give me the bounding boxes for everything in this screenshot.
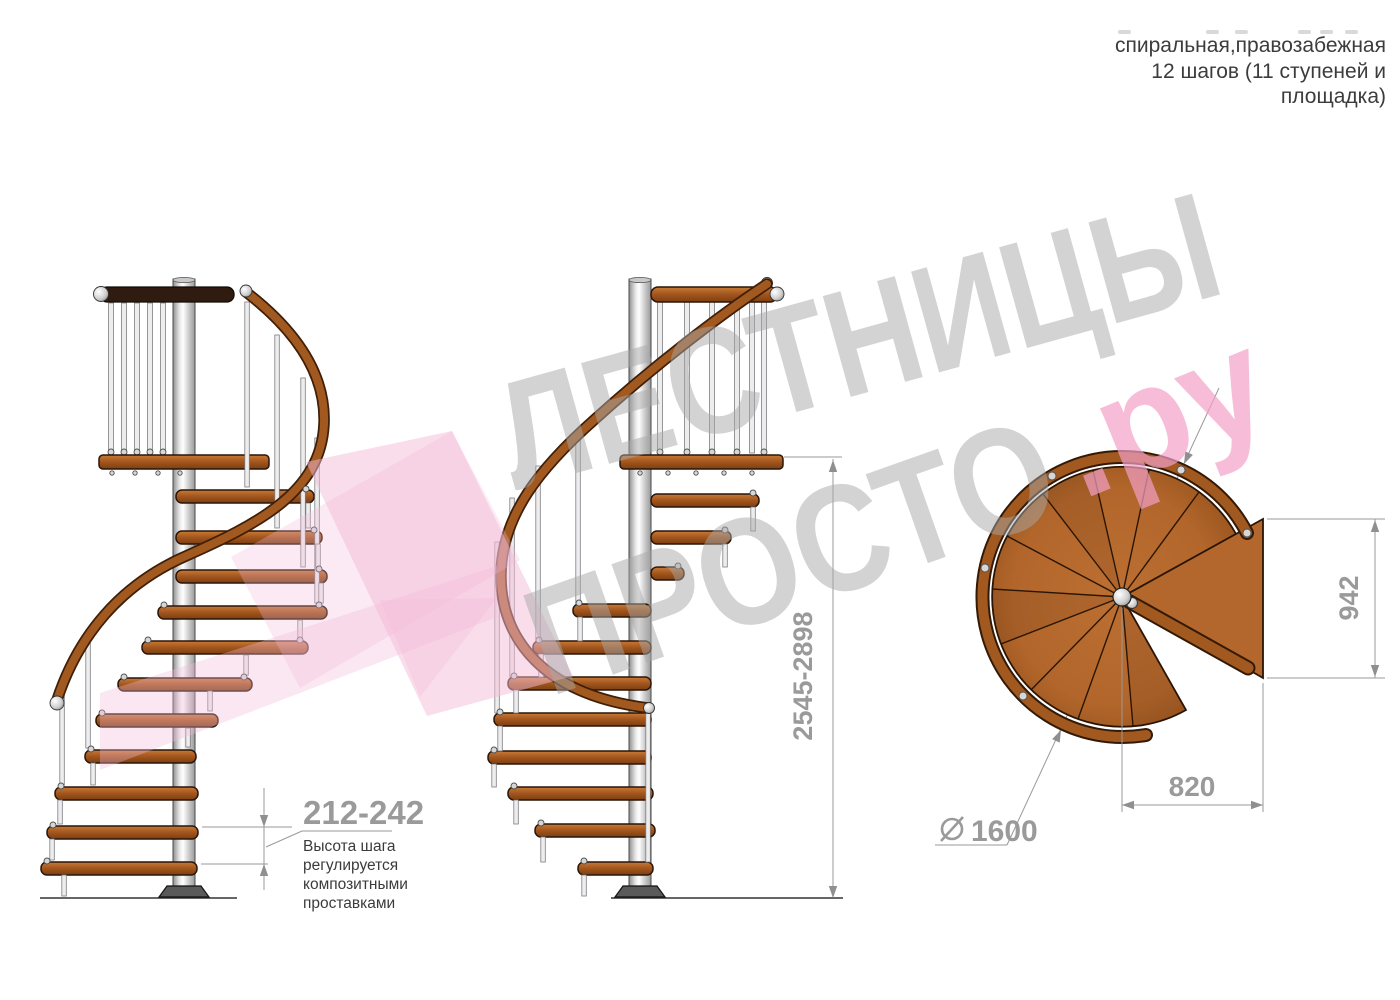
step [651, 531, 731, 544]
landing-depth-value: 942 [1334, 575, 1364, 620]
step [142, 641, 308, 654]
step [55, 787, 198, 800]
step [488, 751, 651, 764]
step [494, 713, 651, 726]
platform-handrail [100, 287, 234, 302]
subtitle-line-3: площадка) [1281, 85, 1386, 108]
step [118, 678, 252, 691]
rail-end-cap [644, 703, 655, 714]
step [578, 862, 653, 875]
staircase-drawing: 2545-2898 212-242 Высота шага регулирует… [0, 0, 1400, 1000]
rail-start-cap [240, 285, 252, 297]
center-pole-plan [1113, 588, 1131, 606]
pole-base [159, 886, 209, 897]
subtitle-line-1: спиральная,правозабежная [1115, 34, 1386, 57]
rail-end-ball [50, 696, 64, 710]
step [573, 604, 651, 617]
subtitle-line-2: 12 шагов (11 ступеней и [1151, 60, 1386, 83]
step [158, 606, 327, 619]
step [96, 714, 218, 727]
step [533, 641, 651, 654]
pole-cap [173, 277, 195, 282]
step [47, 826, 198, 839]
diameter-value: 1600 [971, 815, 1038, 848]
handrail-ball-end [94, 287, 109, 302]
step [535, 824, 655, 837]
step [41, 862, 197, 875]
landing-platform [620, 455, 783, 469]
step [651, 494, 759, 507]
pole-base [615, 886, 665, 897]
pole-cap [629, 277, 651, 282]
step [85, 750, 196, 763]
landing-width-value: 820 [1169, 771, 1216, 802]
step-height-value: 212-242 [303, 794, 424, 831]
total-height-value: 2545-2898 [788, 611, 818, 740]
step [176, 570, 327, 583]
landing-platform [99, 455, 269, 469]
drawing-canvas: 2545-2898 212-242 Высота шага регулирует… [0, 0, 1400, 1000]
handrail-ball-end [770, 287, 784, 301]
step [508, 787, 653, 800]
step [176, 531, 322, 544]
